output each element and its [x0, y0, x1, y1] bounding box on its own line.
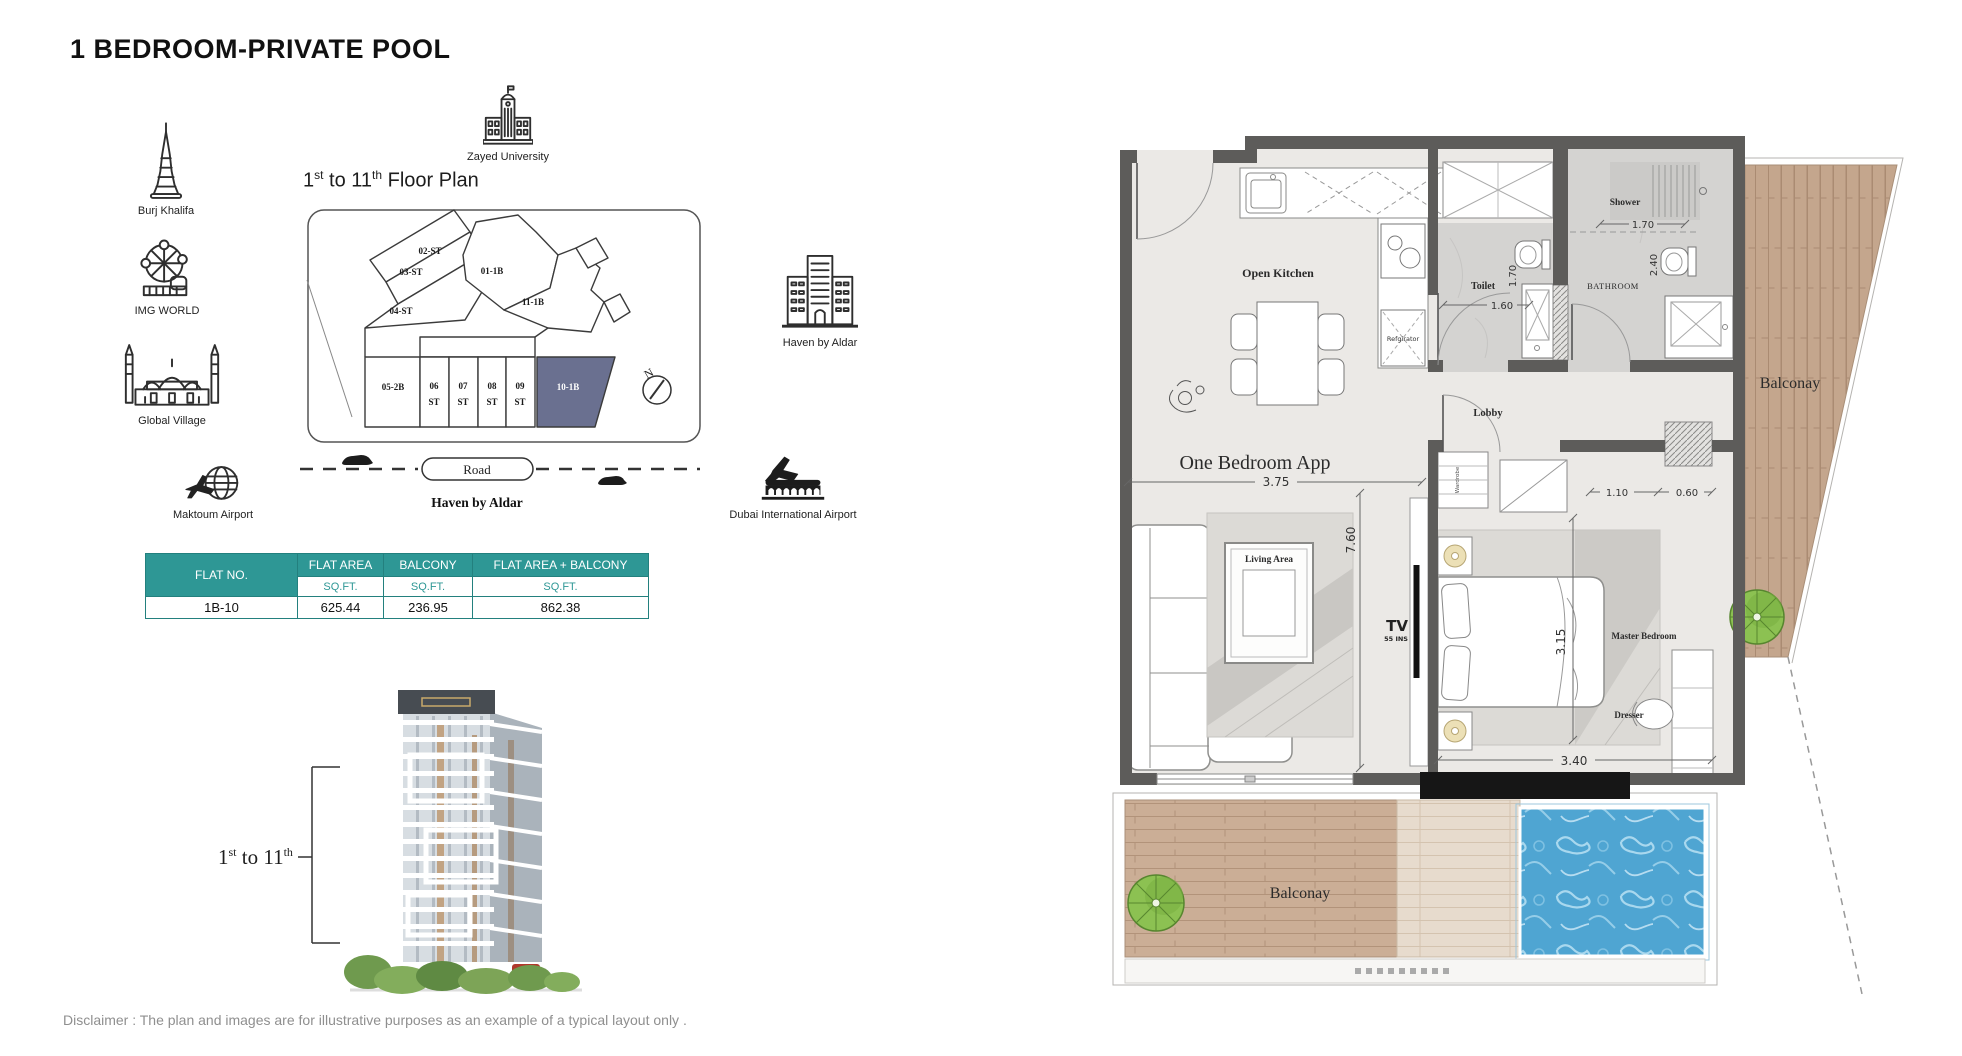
unit-04st: 04-ST: [389, 306, 412, 316]
road-label: Road: [463, 462, 491, 477]
heading-num1: 1: [303, 170, 314, 192]
master-bedroom-label: Master Bedroom: [1612, 631, 1677, 641]
unit-07-st: ST: [457, 397, 468, 407]
dim-1-70-toilet: 1.70: [1508, 265, 1519, 287]
building-render: 1st to 11th: [190, 660, 590, 1005]
dim-3-40: 3.40: [1561, 754, 1588, 768]
car-icon-2: [598, 476, 627, 485]
tv-size-label: 55 INS: [1384, 635, 1408, 643]
apartment-floor-plan: Refgirator: [1105, 128, 1905, 1008]
dim-3-15: 3.15: [1554, 629, 1568, 656]
cell-balcony: 236.95: [384, 597, 473, 619]
img-world-icon: [138, 238, 196, 302]
stove: [1381, 224, 1425, 278]
project-label: Haven by Aldar: [431, 495, 523, 510]
landmark-img-world: IMG WORLD: [117, 238, 217, 317]
compass: N: [642, 365, 672, 404]
living-area-label: Living Area: [1245, 555, 1293, 565]
floors-range-label: 1st to 11th: [218, 845, 293, 869]
car-icon: [342, 455, 373, 465]
toilet-label: Toilet: [1471, 281, 1496, 292]
tv-label: TV: [1386, 617, 1408, 635]
unit-sqft-3: SQ.FT.: [473, 577, 649, 597]
page-title: 1 BEDROOM-PRIVATE POOL: [70, 34, 451, 65]
disclaimer-text: Disclaimer : The plan and images are for…: [63, 1012, 687, 1028]
haven-building-icon: [782, 250, 858, 334]
kitchen-counter: [1240, 168, 1445, 218]
landmark-burj-khalifa: Burj Khalifa: [116, 122, 216, 217]
dim-1-60: 1.60: [1491, 301, 1513, 312]
unit-05-2b: 05-2B: [382, 382, 405, 392]
haven-building-label: Haven by Aldar: [783, 337, 858, 349]
cell-flat-area: 625.44: [298, 597, 384, 619]
dining-table: [1257, 302, 1318, 405]
landmark-global-village: Global Village: [120, 332, 224, 427]
area-table: FLAT NO. FLAT AREA BALCONY FLAT AREA + B…: [145, 553, 649, 619]
tv-screen: [1414, 565, 1420, 678]
unit-02st: 02-ST: [418, 246, 441, 256]
dim-2-40: 2.40: [1649, 254, 1660, 276]
linen-closet: [1443, 162, 1553, 218]
open-kitchen-label: Open Kitchen: [1242, 266, 1314, 280]
col-header-balcony: BALCONY: [384, 554, 473, 577]
dim-0-60: 0.60: [1676, 488, 1698, 499]
unit-09: 09: [516, 381, 526, 391]
unit-06: 06: [430, 381, 440, 391]
burj-khalifa-label: Burj Khalifa: [138, 205, 194, 217]
cell-flat-no: 1B-10: [146, 597, 298, 619]
tree-bottom: [1128, 875, 1184, 931]
dubai-airport-label: Dubai International Airport: [729, 509, 856, 521]
zayed-university-label: Zayed University: [467, 151, 549, 163]
unit-03st: 03-ST: [399, 267, 422, 277]
landmark-zayed-university: Zayed University: [458, 82, 558, 163]
cell-total: 862.38: [473, 597, 649, 619]
landmark-haven-building: Haven by Aldar: [770, 250, 870, 349]
landmark-dubai-airport: Dubai International Airport: [733, 448, 853, 521]
dresser-label: Dresser: [1614, 710, 1643, 720]
lobby-label: Lobby: [1473, 408, 1503, 419]
balcony-deck-light: [1397, 800, 1520, 957]
shower-area: [1610, 162, 1700, 220]
road: Road: [300, 455, 700, 485]
wardrobe-hatched: [1665, 422, 1712, 466]
balcony-right-deck: [1745, 165, 1897, 657]
refrigerator: Refgirator: [1381, 310, 1425, 366]
brochure-page: 1 BEDROOM-PRIVATE POOL 1st to 11th Floor…: [0, 0, 1962, 1056]
service-shaft: [1553, 285, 1568, 360]
site-dashed-line: [1788, 657, 1862, 994]
floors-bracket: [298, 767, 340, 943]
dim-3-75: 3.75: [1263, 475, 1290, 489]
wardrobe-label: Wardrobe: [1455, 466, 1461, 493]
window-black-bar: [1420, 772, 1630, 799]
private-pool: [1520, 808, 1705, 956]
refrigerator-label: Refgirator: [1387, 335, 1420, 343]
global-village-label: Global Village: [138, 415, 206, 427]
key-plan-units: [365, 210, 630, 427]
toilet-vanity: [1522, 284, 1553, 358]
site-boundary-line: [307, 280, 352, 417]
dubai-airport-icon: [758, 448, 828, 506]
living-area-art: Living Area: [1225, 543, 1313, 663]
balcony-bottom-label: Balconay: [1270, 885, 1330, 902]
heading-mid: to 11: [323, 170, 372, 192]
unit-11-1b: 11-1B: [522, 297, 544, 307]
unit-08: 08: [488, 381, 498, 391]
highlighted-unit-shape: [537, 357, 615, 427]
global-village-icon: [122, 332, 222, 412]
sliding-door: [1157, 774, 1353, 784]
heading-rest: Floor Plan: [382, 170, 479, 192]
burj-khalifa-icon: [149, 122, 183, 202]
tower-illustration: [344, 690, 582, 994]
unit-10-1b: 10-1B: [557, 382, 580, 392]
unit-07: 07: [459, 381, 469, 391]
col-header-total: FLAT AREA + BALCONY: [473, 554, 649, 577]
key-plan-diagram: 02-ST 03-ST 04-ST 01-1B 11-1B 05-2B 06 S…: [230, 205, 710, 530]
unit-06-st: ST: [428, 397, 439, 407]
img-world-label: IMG WORLD: [135, 305, 200, 317]
unit-09-st: ST: [514, 397, 525, 407]
balcony-right-label: Balconay: [1760, 375, 1820, 392]
apartment-label: One Bedroom App: [1179, 452, 1330, 474]
dim-7-60: 7.60: [1344, 527, 1358, 554]
heading-sup2: th: [372, 168, 382, 182]
zayed-university-icon: [483, 82, 533, 148]
key-plan-heading: 1st to 11th Floor Plan: [303, 168, 479, 193]
bathroom-label: BATHROOM: [1587, 281, 1639, 291]
dim-1-70-shower: 1.70: [1632, 220, 1654, 231]
unit-01-1b: 01-1B: [481, 266, 504, 276]
shower-label: Shower: [1610, 198, 1641, 208]
tower-sign: [398, 690, 495, 714]
col-header-flat-area: FLAT AREA: [298, 554, 384, 577]
table-row: 1B-10 625.44 236.95 862.38: [146, 597, 649, 619]
dim-1-10: 1.10: [1606, 488, 1628, 499]
unit-sqft-2: SQ.FT.: [384, 577, 473, 597]
unit-08-st: ST: [486, 397, 497, 407]
col-header-flat-no: FLAT NO.: [146, 554, 298, 597]
unit-sqft-1: SQ.FT.: [298, 577, 384, 597]
